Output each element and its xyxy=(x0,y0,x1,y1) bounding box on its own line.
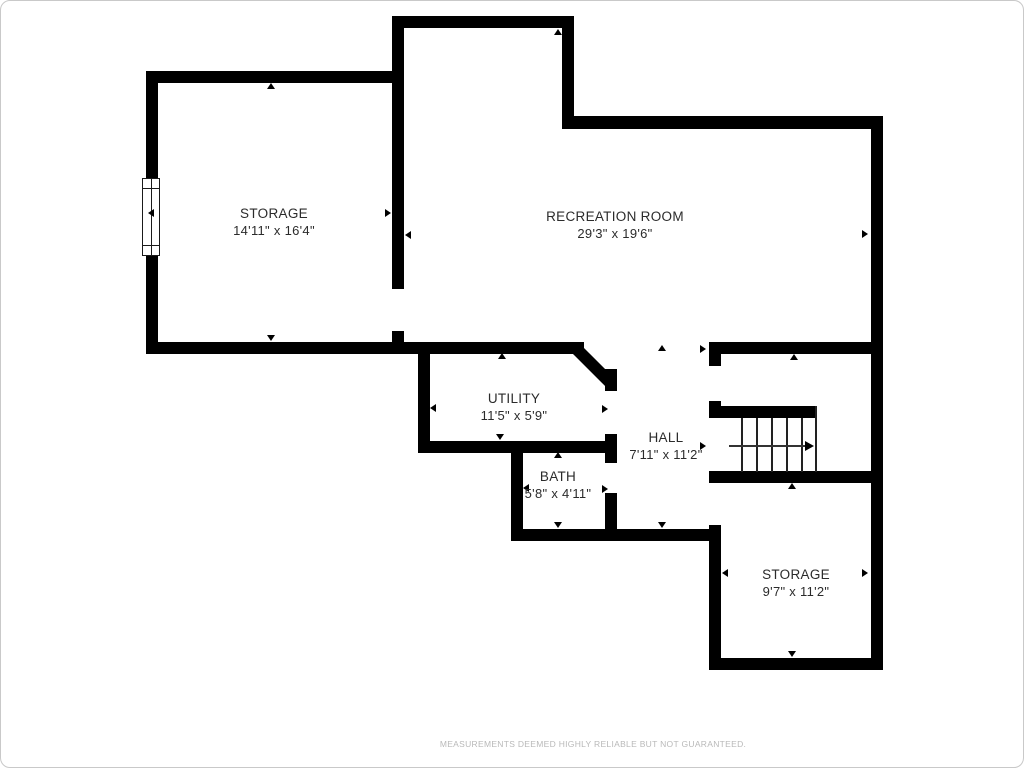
room-name: BATH xyxy=(525,468,592,485)
room-name: UTILITY xyxy=(481,390,548,407)
room-label-bath: BATH 5'8" x 4'11" xyxy=(525,468,592,502)
measurement-disclaimer: MEASUREMENTS DEEMED HIGHLY RELIABLE BUT … xyxy=(440,739,746,749)
wall xyxy=(605,493,617,541)
dim-marker-left xyxy=(430,404,436,412)
dim-marker-left xyxy=(722,569,728,577)
wall xyxy=(392,16,404,289)
wall xyxy=(709,658,883,670)
room-name: RECREATION ROOM xyxy=(546,208,684,225)
room-label-storage-upper: STORAGE 14'11" x 16'4" xyxy=(233,205,315,239)
wall xyxy=(709,525,721,670)
room-label-recreation-room: RECREATION ROOM 29'3" x 19'6" xyxy=(546,208,684,242)
room-label-utility: UTILITY 11'5" x 5'9" xyxy=(481,390,548,424)
wall xyxy=(562,16,574,128)
floor-plan-canvas: STORAGE 14'11" x 16'4" RECREATION ROOM 2… xyxy=(0,0,1024,768)
dim-marker-right xyxy=(862,569,868,577)
wall xyxy=(871,116,883,670)
wall xyxy=(709,342,883,354)
window-tick xyxy=(143,188,159,189)
wall xyxy=(418,342,430,453)
wall xyxy=(562,116,883,129)
wall xyxy=(146,342,584,354)
wall xyxy=(709,406,816,418)
dim-marker-left xyxy=(148,209,154,217)
wall xyxy=(392,331,404,354)
window-symbol xyxy=(142,178,160,256)
room-label-hall: HALL 7'11" x 11'2" xyxy=(629,429,702,463)
wall xyxy=(146,253,158,354)
window-tick xyxy=(143,245,159,246)
wall xyxy=(709,401,721,418)
room-name: STORAGE xyxy=(233,205,315,222)
room-dimensions: 14'11" x 16'4" xyxy=(233,222,315,239)
dim-marker-up xyxy=(498,353,506,359)
dim-marker-down xyxy=(554,522,562,528)
room-dimensions: 29'3" x 19'6" xyxy=(546,225,684,242)
dim-marker-up xyxy=(554,29,562,35)
dim-marker-up xyxy=(658,345,666,351)
stair-edge-line xyxy=(815,406,817,472)
dim-marker-up xyxy=(554,452,562,458)
wall xyxy=(605,434,617,463)
room-name: HALL xyxy=(629,429,702,446)
dim-marker-down xyxy=(267,335,275,341)
wall xyxy=(709,471,883,483)
wall-angled xyxy=(571,343,616,388)
wall xyxy=(511,441,523,541)
room-label-storage-lower: STORAGE 9'7" x 11'2" xyxy=(762,566,830,600)
dim-marker-right xyxy=(602,485,608,493)
dim-marker-left xyxy=(405,231,411,239)
dim-marker-right xyxy=(700,345,706,353)
room-dimensions: 9'7" x 11'2" xyxy=(762,583,830,600)
stairs-direction-arrow xyxy=(729,445,807,447)
dim-marker-right xyxy=(602,405,608,413)
dim-marker-down xyxy=(788,651,796,657)
wall xyxy=(146,71,404,83)
dim-marker-down xyxy=(496,434,504,440)
room-dimensions: 7'11" x 11'2" xyxy=(629,446,702,463)
window-mullion xyxy=(151,179,152,255)
wall xyxy=(146,71,158,181)
wall xyxy=(709,342,721,366)
dim-marker-up xyxy=(788,483,796,489)
room-dimensions: 5'8" x 4'11" xyxy=(525,485,592,502)
dim-marker-right xyxy=(862,230,868,238)
room-name: STORAGE xyxy=(762,566,830,583)
stairs-arrow-head-icon xyxy=(805,441,814,451)
dim-marker-up xyxy=(267,83,275,89)
wall xyxy=(392,16,574,28)
dim-marker-down xyxy=(658,522,666,528)
dim-marker-up xyxy=(790,354,798,360)
dim-marker-right xyxy=(385,209,391,217)
room-dimensions: 11'5" x 5'9" xyxy=(481,407,548,424)
